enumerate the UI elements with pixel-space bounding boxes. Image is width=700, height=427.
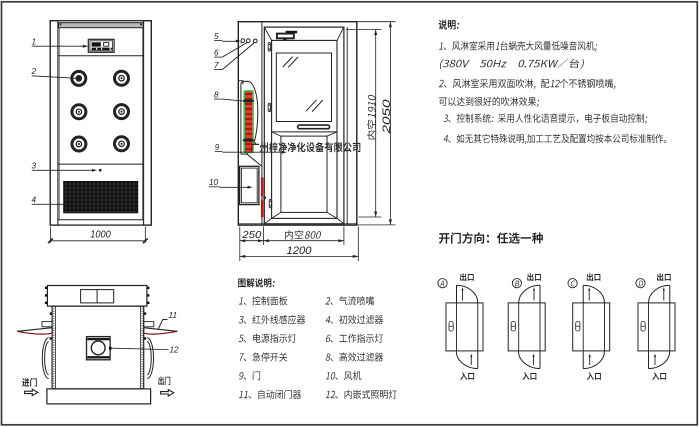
svg-text:2: 2 — [31, 67, 37, 76]
svg-text:250: 250 — [241, 230, 261, 241]
svg-text:1000: 1000 — [90, 229, 111, 240]
svg-text:12: 12 — [170, 346, 180, 355]
svg-text:6: 6 — [214, 49, 219, 58]
svg-text:10: 10 — [209, 178, 219, 187]
svg-text:7: 7 — [214, 61, 219, 70]
svg-text:3: 3 — [32, 161, 37, 170]
svg-text:8: 8 — [214, 91, 219, 100]
svg-text:11: 11 — [169, 311, 178, 320]
svg-text:4: 4 — [32, 196, 37, 205]
svg-text:9: 9 — [215, 143, 220, 152]
svg-text:1: 1 — [32, 38, 37, 47]
svg-text:5: 5 — [214, 32, 219, 41]
svg-text:2050: 2050 — [381, 98, 393, 135]
svg-text:1200: 1200 — [287, 245, 312, 257]
